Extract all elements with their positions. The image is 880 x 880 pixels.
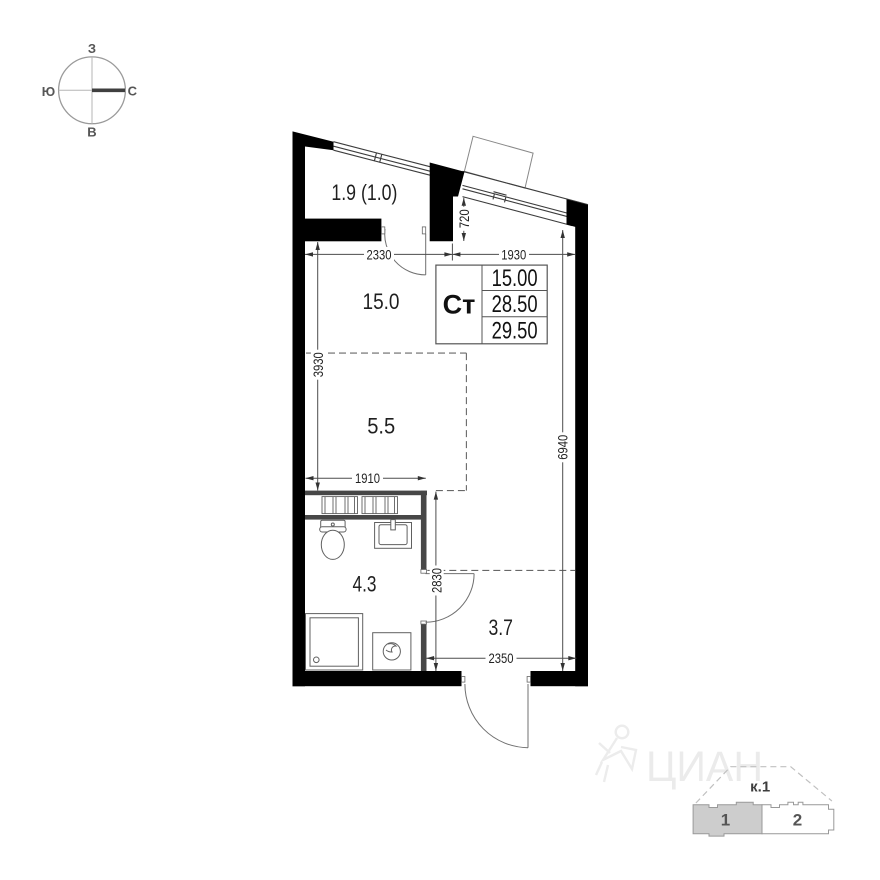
svg-text:5.5: 5.5 — [367, 414, 395, 439]
svg-text:С: С — [128, 83, 138, 98]
svg-text:к.1: к.1 — [750, 778, 770, 795]
svg-text:6940: 6940 — [555, 435, 571, 460]
svg-text:1910: 1910 — [355, 470, 380, 486]
svg-text:1.9 (1.0): 1.9 (1.0) — [331, 180, 397, 205]
svg-text:Ю: Ю — [42, 84, 55, 99]
svg-text:1: 1 — [721, 811, 730, 830]
svg-text:28.50: 28.50 — [492, 291, 538, 318]
svg-text:З: З — [88, 41, 96, 56]
svg-text:4.3: 4.3 — [353, 572, 377, 597]
svg-text:29.50: 29.50 — [492, 318, 538, 345]
svg-text:2330: 2330 — [367, 246, 392, 262]
svg-text:15.0: 15.0 — [363, 289, 400, 314]
svg-text:720: 720 — [456, 209, 472, 228]
svg-text:3930: 3930 — [310, 352, 326, 377]
svg-text:3.7: 3.7 — [488, 615, 513, 640]
svg-text:2830: 2830 — [429, 568, 445, 593]
svg-text:Ст: Ст — [443, 290, 476, 320]
svg-text:2: 2 — [793, 811, 802, 830]
svg-text:1930: 1930 — [501, 246, 526, 262]
svg-text:В: В — [87, 124, 96, 139]
svg-text:15.00: 15.00 — [492, 265, 538, 292]
svg-text:2350: 2350 — [489, 650, 514, 666]
